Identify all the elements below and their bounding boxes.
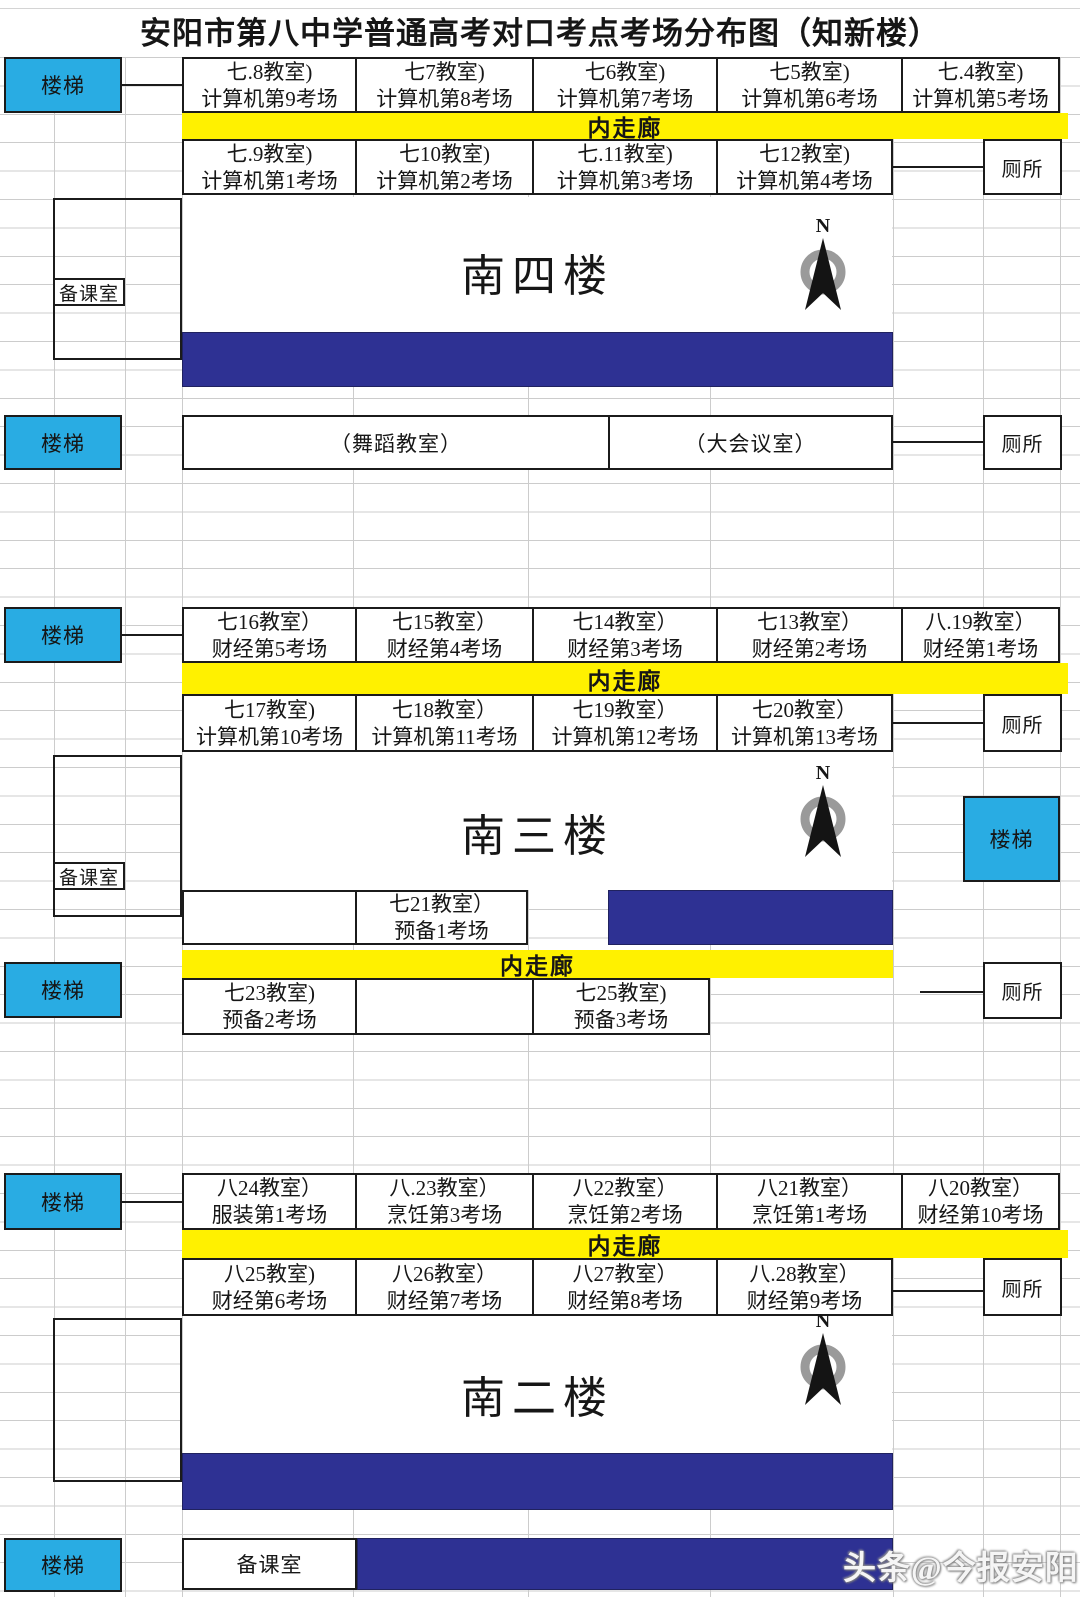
toilet-label: 厕所 — [1002, 976, 1044, 1005]
exam-label: 计算机第5考场 — [912, 86, 1049, 112]
classroom-cell: 八24教室） 服装第1考场 — [184, 1175, 355, 1228]
toilet-connector-line — [893, 1290, 983, 1292]
stairs-connector-line — [122, 634, 182, 636]
classroom-cell: 七12教室) 计算机第4考场 — [716, 141, 891, 193]
room-label: 八20教室） — [928, 1175, 1033, 1201]
room-label: 七13教室） — [757, 609, 862, 635]
exam-label: 财经第3考场 — [567, 636, 683, 662]
room-label: 七21教室） — [389, 891, 494, 917]
exam-label: 计算机第13考场 — [731, 724, 878, 750]
prep-room-label: 备课室 — [59, 279, 119, 306]
classroom-cell: 七15教室） 财经第4考场 — [355, 609, 532, 661]
page-title: 安阳市第八中学普通高考对口考点考场分布图（知新楼） — [0, 8, 1080, 52]
meeting-room-block: （大会议室） — [608, 415, 893, 470]
exam-label: 财经第10考场 — [918, 1202, 1044, 1228]
room-label: 八.19教室） — [925, 609, 1035, 635]
exam-label: 烹饪第3考场 — [387, 1202, 503, 1228]
classroom-row: 七.8教室) 计算机第9考场 七7教室) 计算机第8考场 七6教室) 计算机第7… — [182, 57, 1060, 113]
dance-room-block: （舞蹈教室） — [182, 415, 610, 470]
compass-icon: N — [790, 762, 856, 862]
exam-label: 财经第1考场 — [923, 636, 1039, 662]
grid-vline — [893, 57, 894, 1597]
compass-n-label: N — [790, 1310, 856, 1333]
exam-label: 财经第6考场 — [212, 1288, 328, 1314]
navy-bar — [357, 1538, 893, 1590]
toilet-connector-line — [893, 722, 983, 724]
toilet-connector-line — [920, 991, 983, 993]
classroom-cell: 八20教室） 财经第10考场 — [901, 1175, 1058, 1228]
room-label: 七23教室) — [224, 980, 315, 1006]
stairs-label: 楼梯 — [41, 1187, 85, 1217]
corridor-label: 内走廊 — [588, 109, 663, 143]
room-label: 七14教室） — [573, 609, 678, 635]
compass-icon: N — [790, 215, 856, 315]
exam-label: 烹饪第1考场 — [752, 1202, 868, 1228]
toilet-label: 厕所 — [1002, 1273, 1044, 1302]
room-label: 七.11教室) — [577, 141, 672, 167]
classroom-cell — [184, 892, 355, 943]
stairs-label: 楼梯 — [990, 824, 1034, 854]
room-label: 七19教室） — [573, 697, 678, 723]
exam-label: 计算机第10考场 — [196, 724, 343, 750]
exam-label: 计算机第2考场 — [376, 168, 513, 194]
navy-bar — [182, 1453, 893, 1510]
corridor-label: 内走廊 — [500, 947, 575, 981]
classroom-cell: 八.23教室） 烹饪第3考场 — [355, 1175, 532, 1228]
classroom-row: 七16教室） 财经第5考场 七15教室） 财经第4考场 七14教室） 财经第3考… — [182, 607, 1060, 663]
room-label: 七.4教室) — [938, 59, 1024, 85]
classroom-row: 八24教室） 服装第1考场 八.23教室） 烹饪第3考场 八22教室） 烹饪第2… — [182, 1173, 1060, 1230]
exam-label: 计算机第11考场 — [371, 724, 517, 750]
prep-room-block: 备课室 — [182, 1538, 357, 1590]
classroom-cell: 八27教室） 财经第8考场 — [532, 1260, 716, 1314]
stairs-block: 楼梯 — [4, 415, 122, 470]
room-label: 七20教室） — [752, 697, 857, 723]
classroom-cell: 八.19教室） 财经第1考场 — [901, 609, 1058, 661]
stairs-label: 楼梯 — [41, 428, 85, 458]
classroom-cell: 七21教室） 预备1考场 — [355, 892, 526, 943]
classroom-cell: 八.28教室） 财经第9考场 — [716, 1260, 891, 1314]
exam-label: 财经第7考场 — [387, 1288, 503, 1314]
exam-label: 计算机第12考场 — [552, 724, 699, 750]
compass-icon: N — [790, 1310, 856, 1410]
classroom-cell: 七13教室） 财经第2考场 — [716, 609, 901, 661]
toilet-block: 厕所 — [983, 694, 1062, 752]
exam-label: 计算机第4考场 — [736, 168, 873, 194]
classroom-row: 八25教室) 财经第6考场 八26教室） 财经第7考场 八27教室） 财经第8考… — [182, 1258, 893, 1316]
room-label: 八.23教室） — [389, 1175, 499, 1201]
classroom-cell: 七7教室) 计算机第8考场 — [355, 59, 532, 111]
room-label: 八22教室） — [573, 1175, 678, 1201]
room-label: 八26教室） — [392, 1261, 497, 1287]
classroom-row: 七23教室) 预备2考场 七25教室) 预备3考场 — [182, 978, 710, 1035]
stairs-connector-line — [122, 84, 182, 86]
classroom-cell: 八22教室） 烹饪第2考场 — [532, 1175, 716, 1228]
prep-room-block: 备课室 — [53, 278, 125, 306]
stairs-label: 楼梯 — [41, 975, 85, 1005]
compass-n-label: N — [790, 215, 856, 238]
room-label: 八25教室) — [224, 1261, 315, 1287]
room-label: 七.9教室) — [227, 141, 313, 167]
classroom-cell: 七25教室) 预备3考场 — [532, 980, 708, 1033]
room-label: 八24教室） — [217, 1175, 322, 1201]
stairs-block: 楼梯 — [4, 607, 122, 663]
toilet-label: 厕所 — [1002, 709, 1044, 738]
inner-corridor: 内走廊 — [182, 950, 893, 978]
meeting-room-label: （大会议室） — [685, 428, 817, 458]
room-label: 七12教室) — [759, 141, 850, 167]
classroom-cell: 七17教室) 计算机第10考场 — [184, 696, 355, 750]
stairs-block: 楼梯 — [4, 1173, 122, 1230]
exam-label: 财经第4考场 — [387, 636, 503, 662]
classroom-row: 七.9教室) 计算机第1考场 七10教室) 计算机第2考场 七.11教室) 计算… — [182, 139, 893, 195]
navy-bar — [182, 332, 893, 387]
watermark: 头条@今报安阳 — [843, 1541, 1079, 1589]
stairs-block: 楼梯 — [4, 57, 122, 113]
classroom-cell: 七.11教室) 计算机第3考场 — [532, 141, 716, 193]
floor-name: 南二楼 — [182, 1362, 893, 1426]
stairs-label: 楼梯 — [41, 1550, 85, 1580]
stairs-block: 楼梯 — [963, 796, 1060, 882]
floor-name: 南四楼 — [182, 240, 893, 304]
classroom-cell: 七16教室） 财经第5考场 — [184, 609, 355, 661]
classroom-cell: 八26教室） 财经第7考场 — [355, 1260, 532, 1314]
prep-room-block: 备课室 — [53, 862, 125, 890]
room-label: 七5教室) — [769, 59, 850, 85]
dance-room-label: （舞蹈教室） — [330, 428, 462, 458]
stairs-label: 楼梯 — [41, 620, 85, 650]
exam-label: 服装第1考场 — [212, 1202, 328, 1228]
classroom-row: 七21教室） 预备1考场 — [182, 890, 528, 945]
toilet-connector-line — [893, 166, 983, 168]
exam-label: 预备3考场 — [574, 1007, 669, 1033]
floor-name: 南三楼 — [182, 800, 893, 864]
exam-label: 计算机第6考场 — [741, 86, 878, 112]
room-label: 七18教室） — [392, 697, 497, 723]
exam-label: 预备1考场 — [394, 918, 489, 944]
stairs-connector-line — [122, 1201, 182, 1203]
classroom-cell: 七20教室） 计算机第13考场 — [716, 696, 891, 750]
inner-corridor: 内走廊 — [182, 663, 1068, 694]
classroom-cell: 七23教室) 预备2考场 — [184, 980, 355, 1033]
room-label: 八21教室） — [757, 1175, 862, 1201]
exam-label: 计算机第7考场 — [557, 86, 694, 112]
exam-label: 计算机第3考场 — [557, 168, 694, 194]
room-label: 七7教室) — [404, 59, 485, 85]
classroom-cell: 七6教室) 计算机第7考场 — [532, 59, 716, 111]
floor-plan-canvas: 安阳市第八中学普通高考对口考点考场分布图（知新楼） 楼梯 七.8教室) 计算机第… — [0, 0, 1080, 1597]
exam-label: 计算机第1考场 — [201, 168, 338, 194]
exam-label: 计算机第9考场 — [201, 86, 338, 112]
classroom-cell: 八25教室) 财经第6考场 — [184, 1260, 355, 1314]
classroom-cell: 八21教室） 烹饪第1考场 — [716, 1175, 901, 1228]
exam-label: 财经第8考场 — [567, 1288, 683, 1314]
room-label: 七15教室） — [392, 609, 497, 635]
exam-label: 计算机第8考场 — [376, 86, 513, 112]
classroom-cell: 七19教室） 计算机第12考场 — [532, 696, 716, 750]
corridor-label: 内走廊 — [588, 1227, 663, 1261]
room-label: 七25教室) — [576, 980, 667, 1006]
stairs-block: 楼梯 — [4, 1538, 122, 1592]
grid-vline — [1060, 57, 1061, 1597]
compass-needle — [790, 1331, 856, 1410]
exam-label: 预备2考场 — [222, 1007, 317, 1033]
room-label: 七.8教室) — [227, 59, 313, 85]
navy-block — [608, 890, 893, 945]
corridor-label: 内走廊 — [588, 662, 663, 696]
room-label: 七10教室) — [399, 141, 490, 167]
exam-label: 财经第5考场 — [212, 636, 328, 662]
prep-room-label: 备课室 — [59, 863, 119, 890]
classroom-cell: 七.9教室) 计算机第1考场 — [184, 141, 355, 193]
classroom-cell: 七.8教室) 计算机第9考场 — [184, 59, 355, 111]
compass-needle — [790, 236, 856, 315]
inner-corridor: 内走廊 — [182, 113, 1068, 139]
room-label: 七16教室） — [217, 609, 322, 635]
room-label: 八.28教室） — [749, 1261, 859, 1287]
toilet-connector-line — [893, 441, 983, 443]
toilet-block: 厕所 — [983, 139, 1062, 195]
toilet-block: 厕所 — [983, 1258, 1062, 1316]
classroom-row: 七17教室) 计算机第10考场 七18教室） 计算机第11考场 七19教室） 计… — [182, 694, 893, 752]
classroom-cell: 七.4教室) 计算机第5考场 — [901, 59, 1058, 111]
classroom-cell: 七18教室） 计算机第11考场 — [355, 696, 532, 750]
toilet-block: 厕所 — [983, 415, 1062, 470]
compass-needle — [790, 783, 856, 862]
side-room-box — [53, 1318, 182, 1482]
toilet-label: 厕所 — [1002, 153, 1044, 182]
room-label: 七6教室) — [585, 59, 666, 85]
classroom-cell: 七14教室） 财经第3考场 — [532, 609, 716, 661]
exam-label: 财经第2考场 — [752, 636, 868, 662]
toilet-label: 厕所 — [1002, 428, 1044, 457]
toilet-block: 厕所 — [983, 962, 1062, 1019]
prep-room-label: 备课室 — [237, 1549, 303, 1579]
inner-corridor: 内走廊 — [182, 1230, 1068, 1258]
side-room-box — [53, 755, 182, 917]
classroom-cell: 七5教室) 计算机第6考场 — [716, 59, 901, 111]
room-label: 八27教室） — [573, 1261, 678, 1287]
compass-n-label: N — [790, 762, 856, 785]
stairs-label: 楼梯 — [41, 70, 85, 100]
classroom-cell — [355, 980, 532, 1033]
exam-label: 烹饪第2考场 — [567, 1202, 683, 1228]
stairs-block: 楼梯 — [4, 962, 122, 1018]
classroom-cell: 七10教室) 计算机第2考场 — [355, 141, 532, 193]
room-label: 七17教室) — [224, 697, 315, 723]
